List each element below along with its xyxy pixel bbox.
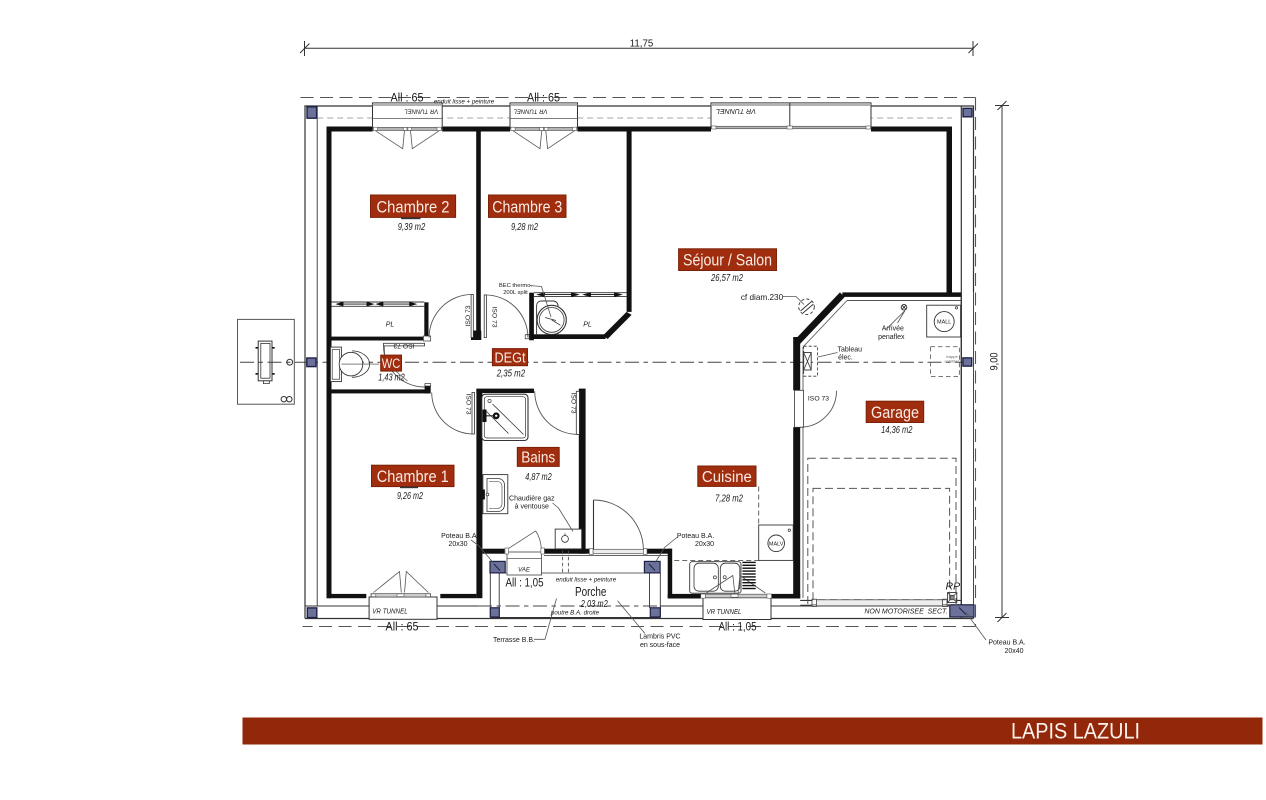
svg-text:VAE: VAE bbox=[518, 566, 531, 573]
svg-text:NON MOTORISEE SECT.: NON MOTORISEE SECT. bbox=[864, 609, 947, 616]
svg-text:RP: RP bbox=[946, 580, 961, 592]
svg-text:LAPIS LAZULI: LAPIS LAZULI bbox=[1011, 719, 1140, 744]
svg-text:Chaudière gaz: Chaudière gaz bbox=[509, 495, 555, 502]
svg-text:20x40: 20x40 bbox=[1004, 648, 1023, 655]
svg-text:Terrasse B.B.: Terrasse B.B. bbox=[493, 637, 535, 644]
svg-text:2,35 m2: 2,35 m2 bbox=[496, 369, 526, 380]
svg-text:Bains: Bains bbox=[521, 450, 555, 467]
svg-text:200L split: 200L split bbox=[503, 290, 528, 296]
svg-text:14,36 m2: 14,36 m2 bbox=[881, 425, 913, 436]
svg-text:9,28 m2: 9,28 m2 bbox=[511, 222, 538, 233]
svg-text:2,03 m2: 2,03 m2 bbox=[580, 599, 608, 610]
svg-text:PL: PL bbox=[386, 322, 395, 329]
svg-text:ISO 73: ISO 73 bbox=[491, 306, 498, 327]
svg-text:Séjour / Salon: Séjour / Salon bbox=[683, 251, 772, 270]
svg-text:All : 65: All : 65 bbox=[386, 622, 419, 634]
svg-text:VR TUNNEL: VR TUNNEL bbox=[716, 107, 756, 116]
svg-text:Lambris PVC: Lambris PVC bbox=[639, 634, 680, 641]
svg-text:VR TUNNEL: VR TUNNEL bbox=[707, 607, 742, 616]
svg-text:20x30: 20x30 bbox=[695, 541, 714, 548]
svg-text:VR TUNNEL: VR TUNNEL bbox=[372, 607, 408, 616]
svg-text:cf diam.230: cf diam.230 bbox=[741, 293, 784, 302]
svg-text:Arrivée: Arrivée bbox=[882, 325, 904, 332]
svg-text:Cuisine: Cuisine bbox=[702, 469, 752, 486]
svg-text:Chambre 3: Chambre 3 bbox=[492, 198, 562, 217]
svg-text:9,00: 9,00 bbox=[989, 353, 1001, 371]
svg-text:26,57 m2: 26,57 m2 bbox=[710, 273, 743, 284]
svg-text:ISO 73: ISO 73 bbox=[570, 392, 577, 413]
svg-text:ISO 73: ISO 73 bbox=[465, 305, 472, 326]
svg-text:ISO 73: ISO 73 bbox=[465, 393, 472, 414]
svg-text:9,26 m2: 9,26 m2 bbox=[397, 491, 423, 502]
svg-text:enduit lisse + peinture: enduit lisse + peinture bbox=[434, 99, 495, 106]
svg-text:ISO 73: ISO 73 bbox=[393, 342, 414, 349]
svg-text:All : 1,05: All : 1,05 bbox=[719, 622, 757, 634]
svg-text:PL: PL bbox=[583, 322, 592, 329]
svg-text:All : 65: All : 65 bbox=[391, 93, 424, 105]
svg-text:All : 1,05: All : 1,05 bbox=[506, 577, 544, 589]
svg-text:9,39 m2: 9,39 m2 bbox=[398, 222, 426, 233]
svg-text:enduit lisse + peinture: enduit lisse + peinture bbox=[556, 577, 617, 584]
svg-text:VR TUNNEL: VR TUNNEL bbox=[404, 107, 438, 114]
svg-text:ISO 73: ISO 73 bbox=[808, 396, 829, 403]
svg-text:11,75: 11,75 bbox=[630, 38, 654, 50]
svg-text:poutre B.A. droite: poutre B.A. droite bbox=[550, 610, 600, 617]
svg-text:All : 65: All : 65 bbox=[527, 93, 560, 105]
svg-text:en sous-face: en sous-face bbox=[640, 642, 680, 649]
svg-text:combles: combles bbox=[945, 359, 960, 364]
svg-text:7,28 m2: 7,28 m2 bbox=[715, 494, 743, 505]
svg-text:MALL: MALL bbox=[937, 320, 951, 326]
svg-text:4,87 m2: 4,87 m2 bbox=[525, 472, 552, 483]
svg-text:Chambre 1: Chambre 1 bbox=[377, 467, 449, 486]
svg-text:MALV: MALV bbox=[769, 541, 784, 547]
svg-text:DEGt: DEGt bbox=[495, 350, 526, 366]
svg-text:20x30: 20x30 bbox=[448, 541, 467, 548]
svg-text:Garage: Garage bbox=[871, 403, 919, 422]
svg-text:élec.: élec. bbox=[838, 354, 853, 361]
svg-text:Tableau: Tableau bbox=[838, 346, 863, 353]
svg-text:VR TUNNEL: VR TUNNEL bbox=[513, 107, 547, 114]
svg-text:Porche: Porche bbox=[575, 584, 607, 599]
svg-text:WC: WC bbox=[382, 356, 401, 371]
svg-text:à ventouse: à ventouse bbox=[515, 504, 549, 511]
svg-text:penaflex: penaflex bbox=[878, 334, 905, 341]
svg-text:Poteau B.A.: Poteau B.A. bbox=[677, 533, 714, 540]
svg-text:1,43 m2: 1,43 m2 bbox=[378, 373, 405, 384]
svg-text:Poteau B.A.: Poteau B.A. bbox=[441, 533, 478, 540]
svg-text:Poteau B.A.: Poteau B.A. bbox=[988, 640, 1025, 647]
svg-text:BEC thermo.: BEC thermo. bbox=[499, 283, 533, 289]
svg-text:Chambre 2: Chambre 2 bbox=[377, 198, 450, 217]
